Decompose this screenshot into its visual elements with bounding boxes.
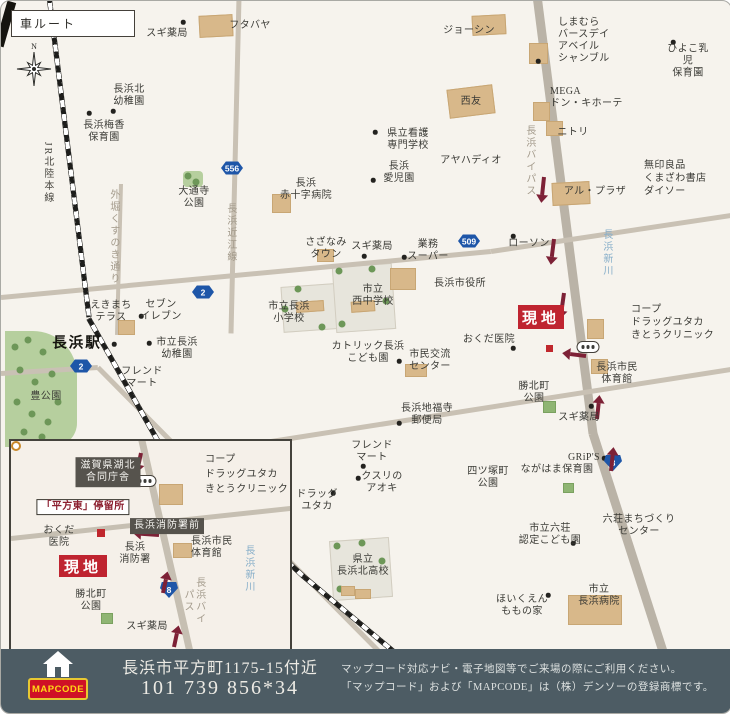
road	[658, 1, 665, 99]
mapcode-notes: マップコード対応ナビ・電子地図等でご来場の際にご利用ください。 「マップコード」…	[341, 661, 714, 697]
poi-dot	[147, 341, 152, 346]
map-label: 長浜 愛児園	[383, 161, 414, 185]
map-label: 県立 長浜北高校	[337, 554, 389, 578]
map-label: 市立長浜 小学校	[268, 301, 310, 325]
map-label: おくだ医院	[463, 334, 515, 346]
callout-line	[622, 334, 628, 335]
map-label: コープ	[205, 454, 236, 466]
road	[432, 293, 440, 471]
map-label: 西友	[461, 96, 482, 108]
poi-dot	[356, 476, 361, 481]
map-label: スギ薬局	[126, 621, 168, 633]
route-arrow	[168, 624, 184, 648]
map-label: 長浜地福寺 郵便局	[401, 403, 453, 427]
map-label: 無印良品	[644, 160, 686, 172]
map-label: 業務 スーパー	[407, 239, 449, 263]
tree-icon	[14, 399, 21, 406]
map-label: カトリック長浜 こども園	[332, 341, 405, 365]
map-page: 556509228現地スギ薬局フタバヤジョーシンしまむらバースデイアベイルシャン…	[0, 0, 730, 714]
map-label: MEGA ドン・キホーテ	[550, 86, 623, 110]
park-square	[101, 613, 113, 624]
road	[1, 110, 119, 116]
compass-rose: N	[14, 43, 54, 92]
road	[470, 253, 480, 613]
map-label: 長浜市役所	[434, 278, 486, 290]
map-label: クスリの アオキ	[361, 471, 402, 495]
road	[533, 0, 598, 434]
tree-icon	[17, 367, 24, 374]
callout-line	[601, 334, 622, 335]
site-address: 長浜市平方町1175-15付近	[106, 654, 334, 678]
compass-star-icon	[16, 51, 52, 87]
mapcode-note-1: マップコード対応ナビ・電子地図等でご来場の際にご利用ください。	[341, 661, 714, 679]
route-arrow	[561, 347, 586, 362]
tree-icon	[193, 179, 200, 186]
map-label: おくだ 医院	[43, 525, 74, 549]
map-label: ながはま保育園	[521, 464, 594, 476]
map-label: シャンブル	[558, 53, 610, 65]
map-label: 長浜バイパス	[181, 576, 205, 626]
route-shield: 556	[221, 162, 243, 175]
callout-line	[549, 23, 550, 59]
map-label: ジョーシン	[443, 25, 495, 37]
poi-dot	[373, 130, 378, 135]
map-label: 長浜市民 体育館	[596, 362, 638, 386]
tree-icon	[12, 344, 19, 351]
poi-dot	[111, 109, 116, 114]
map-label: アベイル	[558, 41, 599, 53]
map-label: ドラッグユタカ	[205, 469, 278, 481]
map-label: 六荘まちづくり センター	[603, 514, 676, 538]
compass-north-label: N	[14, 43, 54, 51]
tree-icon	[369, 266, 376, 273]
building	[355, 589, 371, 599]
map-label: 長浜新川	[242, 545, 254, 593]
callout-line	[635, 165, 641, 166]
map-label: ローソン	[508, 238, 550, 250]
tree-icon	[29, 411, 36, 418]
map-label: 市立六荘 認定こども園	[519, 523, 581, 547]
building	[173, 543, 192, 558]
road	[1, 160, 116, 167]
map-label: 長浜 赤十字病院	[280, 178, 332, 202]
map-label: 県立看護 専門学校	[387, 128, 429, 152]
road	[692, 423, 702, 563]
poi-dot	[361, 464, 366, 469]
callout-line	[197, 459, 202, 460]
map-label: きとうクリニック	[205, 484, 288, 496]
site-label: 現地	[518, 305, 564, 329]
map-label: えきまち テラス	[90, 300, 131, 324]
map-label: コープ	[631, 304, 662, 316]
callout-line	[113, 347, 114, 370]
callout-line	[550, 34, 556, 35]
map-label: 四ツ塚町 公園	[467, 466, 509, 490]
road	[1, 232, 115, 238]
map-label: 外堀くすのき通り	[107, 189, 119, 285]
callout-line	[550, 46, 556, 47]
map-label: フレンド マート	[121, 366, 163, 390]
map-label: フレンド マート	[351, 440, 393, 464]
road	[136, 1, 142, 64]
site-pointer-line	[100, 537, 102, 555]
mapcode-bar: MAPCODE 長浜市平方町1175-15付近 101 739 856*34 マ…	[1, 649, 730, 713]
map-label: JR北陸本線	[41, 142, 53, 205]
map-label: くまざわ書店	[644, 173, 706, 185]
mapcode-logo: MAPCODE	[28, 678, 88, 700]
road	[119, 216, 241, 222]
road	[695, 1, 702, 219]
route-arrow	[535, 176, 550, 203]
map-label: ひよこ乳児 保育園	[667, 43, 710, 78]
map-label: 市立長浜 幼稚園	[156, 337, 198, 361]
map-label: 滋賀県湖北 合同庁舎	[76, 457, 141, 487]
road	[1, 188, 113, 194]
tree-icon	[334, 543, 341, 550]
map-label: ドラッグ ユタカ	[296, 489, 338, 513]
tree-icon	[185, 173, 192, 180]
tree-icon	[295, 286, 302, 293]
callout-line	[130, 507, 131, 516]
poi-dot	[362, 254, 367, 259]
callout-line	[197, 489, 202, 490]
tree-icon	[25, 337, 32, 344]
map-label: 長浜バイパス	[523, 125, 535, 197]
map-label: しまむら	[558, 17, 600, 29]
road	[276, 1, 284, 269]
tree-icon	[21, 429, 28, 436]
map-label: 長浜消防署前	[130, 518, 204, 534]
map-label: 勝北町 公園	[75, 589, 106, 613]
river	[192, 233, 200, 263]
map-label: 市民交流 センター	[409, 349, 451, 373]
map-label: 豊公園	[30, 391, 61, 403]
callout-line	[196, 460, 197, 498]
inset-map: 8現地滋賀県湖北 合同庁舎「平方東」停留所おくだ 医院長浜 消防署勝北町 公園ス…	[9, 439, 292, 653]
map-label: スギ薬局	[146, 28, 188, 40]
poi-dot	[536, 59, 541, 64]
car-route-label: 車ルート	[20, 15, 76, 32]
map-label: スギ薬局	[558, 412, 600, 424]
callout-line	[181, 497, 197, 498]
callout-line	[622, 321, 628, 322]
map-label: ほいくえん ももの家	[496, 594, 548, 618]
tree-icon	[359, 540, 366, 547]
map-label: 長浜 消防署	[119, 542, 150, 566]
route-shield: 509	[458, 235, 480, 248]
map-label: ダイソー	[644, 186, 686, 198]
house-icon	[43, 651, 73, 677]
building	[341, 586, 355, 596]
poi-dot	[371, 178, 376, 183]
road	[345, 319, 352, 651]
map-label: 長浜北 幼稚園	[113, 84, 144, 108]
mapcode-value: 101 739 856*34	[106, 677, 334, 700]
tree-icon	[319, 324, 326, 331]
road	[635, 433, 642, 651]
map-label: 長浜市民 体育館	[191, 536, 233, 560]
site-square	[97, 529, 105, 537]
map-label: ニトリ	[557, 127, 588, 139]
route-shield: 2	[192, 286, 214, 299]
callout-line	[622, 308, 628, 309]
poi-dot	[112, 342, 117, 347]
road	[169, 6, 730, 18]
map-label: 大通寺 公園	[178, 186, 209, 210]
road	[455, 1, 464, 251]
map-label: GRiP'S	[568, 452, 600, 464]
map-label: 「平方東」停留所	[36, 499, 129, 515]
tree-icon	[49, 371, 56, 378]
road	[621, 218, 730, 228]
map-label: ドラッグユタカ	[631, 317, 704, 329]
map-label: バースデイ	[558, 29, 610, 41]
map-label: 勝北町 公園	[518, 381, 549, 405]
site-label: 現地	[59, 555, 107, 577]
tree-icon	[40, 349, 47, 356]
poi-dot	[87, 111, 92, 116]
river	[373, 618, 471, 635]
tree-icon	[339, 321, 346, 328]
tree-icon	[45, 419, 52, 426]
tree-icon	[336, 268, 343, 275]
park-square	[563, 483, 574, 493]
building	[159, 484, 183, 505]
tree-icon	[32, 379, 39, 386]
map-label: フタバヤ	[229, 20, 271, 32]
road	[210, 476, 217, 651]
map-label: セブン イレブン	[140, 299, 182, 323]
mapcode-note-2: 「マップコード」および「MAPCODE」は（株）デンソーの登録商標です。	[341, 679, 714, 697]
map-label: 長浜駅	[52, 335, 102, 352]
map-label: 長浜近江線	[224, 203, 236, 263]
building	[390, 268, 416, 290]
map-label: 市立 西中学校	[352, 284, 394, 308]
building	[533, 102, 550, 121]
callout-line	[197, 474, 202, 475]
callout-line	[635, 178, 641, 179]
poi-dot	[511, 346, 516, 351]
callout-line	[550, 58, 556, 59]
map-label: 市立 長浜病院	[578, 584, 620, 608]
river	[648, 409, 659, 471]
poi-dot	[402, 255, 407, 260]
map-label: 長浜新川	[600, 229, 612, 277]
car-route-legend: 車ルート	[11, 10, 135, 37]
site-square	[546, 345, 553, 352]
building	[587, 319, 604, 339]
map-label: さざなみ タウン	[305, 237, 347, 261]
map-label: アヤハディオ	[440, 155, 502, 167]
poi-dot	[181, 20, 186, 25]
bus-stop-icon	[11, 441, 21, 451]
map-label: アル・プラザ	[564, 186, 626, 198]
callout-line	[635, 191, 641, 192]
map-label: 長浜梅香 保育園	[83, 120, 125, 144]
map-label: きとうクリニック	[631, 330, 714, 342]
callout-line	[550, 22, 556, 23]
map-label: スギ薬局	[351, 241, 393, 253]
route-arrow	[605, 447, 619, 472]
